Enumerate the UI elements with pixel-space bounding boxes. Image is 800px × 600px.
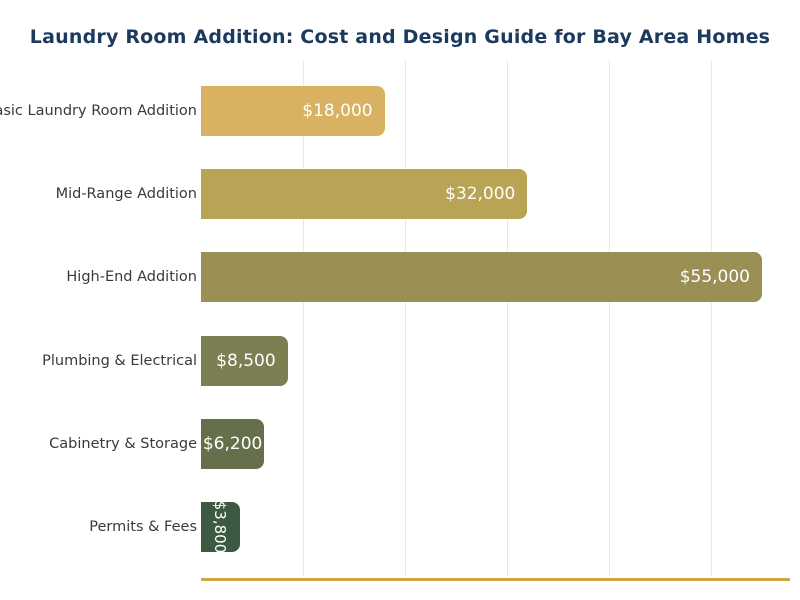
category-label: Mid-Range Addition <box>0 169 197 219</box>
bar-value-label: $55,000 <box>680 252 750 302</box>
bar: $32,000 <box>201 169 527 219</box>
bar-value-label: $18,000 <box>302 86 372 136</box>
gridline <box>405 60 406 576</box>
bar: $8,500 <box>201 336 288 386</box>
bar: $18,000 <box>201 86 385 136</box>
plot-area: Basic Laundry Room Addition$18,000Mid-Ra… <box>0 0 800 600</box>
bar-value-label: $3,800 <box>211 501 229 554</box>
bar: $6,200 <box>201 419 264 469</box>
gridline <box>711 60 712 576</box>
gridline <box>609 60 610 576</box>
category-label: Cabinetry & Storage <box>0 419 197 469</box>
gridline <box>303 60 304 576</box>
bar-value-label: $32,000 <box>445 169 515 219</box>
category-label: High-End Addition <box>0 252 197 302</box>
category-label: Plumbing & Electrical <box>0 336 197 386</box>
category-label: Basic Laundry Room Addition <box>0 86 197 136</box>
x-axis-line <box>201 578 790 581</box>
category-label: Permits & Fees <box>0 502 197 552</box>
bar: $3,800 <box>201 502 240 552</box>
gridline <box>507 60 508 576</box>
bar-value-label: $6,200 <box>203 419 262 469</box>
bar-value-label: $8,500 <box>216 336 275 386</box>
bar: $55,000 <box>201 252 762 302</box>
chart-canvas: Laundry Room Addition: Cost and Design G… <box>0 0 800 600</box>
